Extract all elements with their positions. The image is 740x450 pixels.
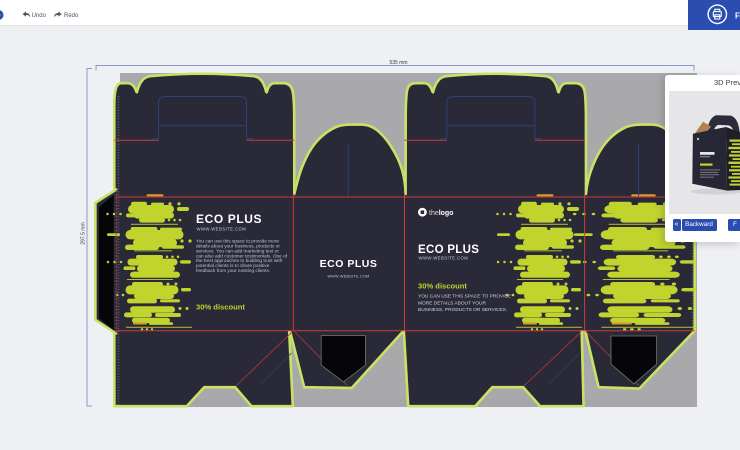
svg-text:logo: logo <box>439 210 454 217</box>
svg-text:WWW.WEBSITE.COM: WWW.WEBSITE.COM <box>328 275 370 279</box>
svg-text:WWW.WEBSITE.COM: WWW.WEBSITE.COM <box>419 256 469 261</box>
svg-text:BUSINESS, PRODUCTS OR SERVICES: BUSINESS, PRODUCTS OR SERVICES. <box>418 307 507 313</box>
svg-text:297.5 mm: 297.5 mm <box>81 222 87 244</box>
svg-text:ECO PLUS: ECO PLUS <box>196 212 262 226</box>
svg-text:the: the <box>429 210 439 217</box>
svg-text:ECO PLUS: ECO PLUS <box>320 258 378 270</box>
svg-text:535 mm: 535 mm <box>389 60 407 66</box>
svg-text:ECO PLUS: ECO PLUS <box>418 244 479 256</box>
svg-text:YOU CAN USE THIS SPACE TO PROV: YOU CAN USE THIS SPACE TO PROVIDE <box>418 294 511 300</box>
svg-text:30% discount: 30% discount <box>418 282 467 291</box>
svg-text:WWW.WEBSITE.COM: WWW.WEBSITE.COM <box>197 227 247 232</box>
svg-text:30% discount: 30% discount <box>196 303 245 312</box>
svg-text:MORE DETAILS ABOUT YOUR: MORE DETAILS ABOUT YOUR <box>418 300 487 306</box>
svg-text:feedback from your existing cl: feedback from your existing clients. <box>196 268 270 274</box>
